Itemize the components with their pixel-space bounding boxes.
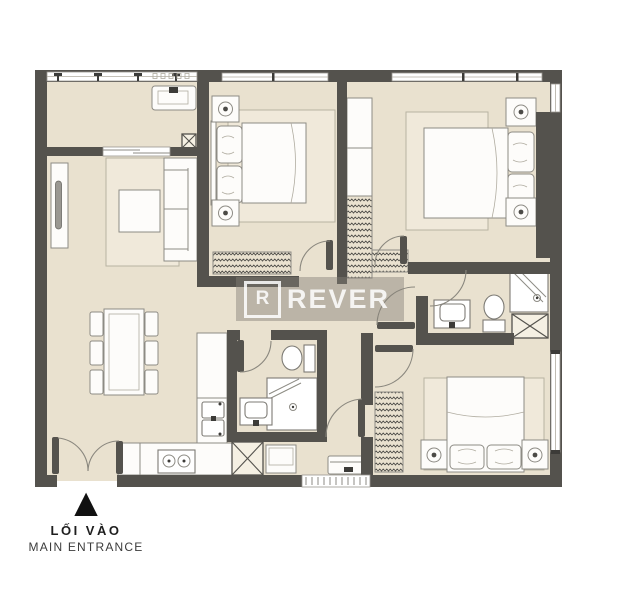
entrance-label-vietnamese: LỐI VÀO: [20, 523, 152, 538]
coffee-table: [119, 190, 160, 232]
wall: [361, 437, 373, 475]
pillow: [508, 132, 534, 172]
sink-icon: [434, 300, 470, 328]
main-entrance-annotation: ▲ LỐI VÀO MAIN ENTRANCE: [20, 486, 152, 554]
wall: [197, 82, 209, 287]
wall: [227, 330, 237, 442]
utility-shaft: [512, 314, 548, 338]
wall: [536, 112, 562, 258]
dining-chair: [90, 370, 103, 394]
bed-headboard: [211, 121, 216, 205]
bed: [242, 123, 306, 203]
wall: [370, 475, 562, 487]
service-balcony-railing: [302, 475, 370, 487]
cabinet: [347, 98, 372, 148]
dining-chair: [90, 341, 103, 365]
wall: [35, 70, 47, 487]
wardrobe: [347, 196, 372, 278]
wall: [408, 262, 550, 274]
wall: [227, 432, 327, 442]
dining-chair: [145, 370, 158, 394]
entrance-arrow-icon: ▲: [20, 486, 152, 520]
rever-logo-icon: R: [244, 281, 281, 318]
stove-icon: [158, 450, 195, 473]
toilet-icon: [483, 295, 505, 332]
wall: [361, 333, 373, 405]
shower-icon: [267, 378, 317, 430]
window: [551, 350, 560, 454]
dining-chair: [145, 341, 158, 365]
dining-area: [90, 309, 158, 395]
tv-icon: [56, 181, 62, 229]
dining-chair: [90, 312, 103, 336]
dining-chair: [145, 312, 158, 336]
balcony-railing: [47, 72, 197, 81]
watermark-brand: REVER: [281, 284, 396, 315]
cabinet: [347, 148, 372, 196]
refrigerator: [266, 445, 296, 473]
wall: [170, 147, 197, 156]
sofa: [164, 158, 197, 261]
wall: [41, 147, 103, 156]
floor-plan: R REVER ▲ LỐI VÀO MAIN ENTRANCE: [0, 0, 630, 600]
bed: [424, 128, 508, 218]
watermark: R REVER: [236, 277, 404, 321]
wall-control-icon: [182, 134, 196, 148]
window: [551, 84, 560, 112]
pillow: [217, 126, 242, 163]
wall: [416, 333, 514, 345]
wardrobe: [213, 252, 291, 274]
dining-table: [104, 309, 144, 395]
wall: [317, 330, 327, 442]
balcony: [152, 86, 196, 110]
pillow: [217, 166, 242, 203]
sink-icon: [240, 398, 272, 426]
entrance-label-english: MAIN ENTRANCE: [20, 540, 152, 554]
utility-shaft: [232, 442, 263, 475]
shower-icon: [510, 268, 548, 312]
window: [392, 73, 542, 81]
sliding-door: [103, 147, 170, 156]
wardrobe: [375, 392, 403, 472]
wall: [337, 82, 347, 284]
window: [222, 73, 328, 81]
rever-logo-letter: R: [256, 288, 270, 310]
